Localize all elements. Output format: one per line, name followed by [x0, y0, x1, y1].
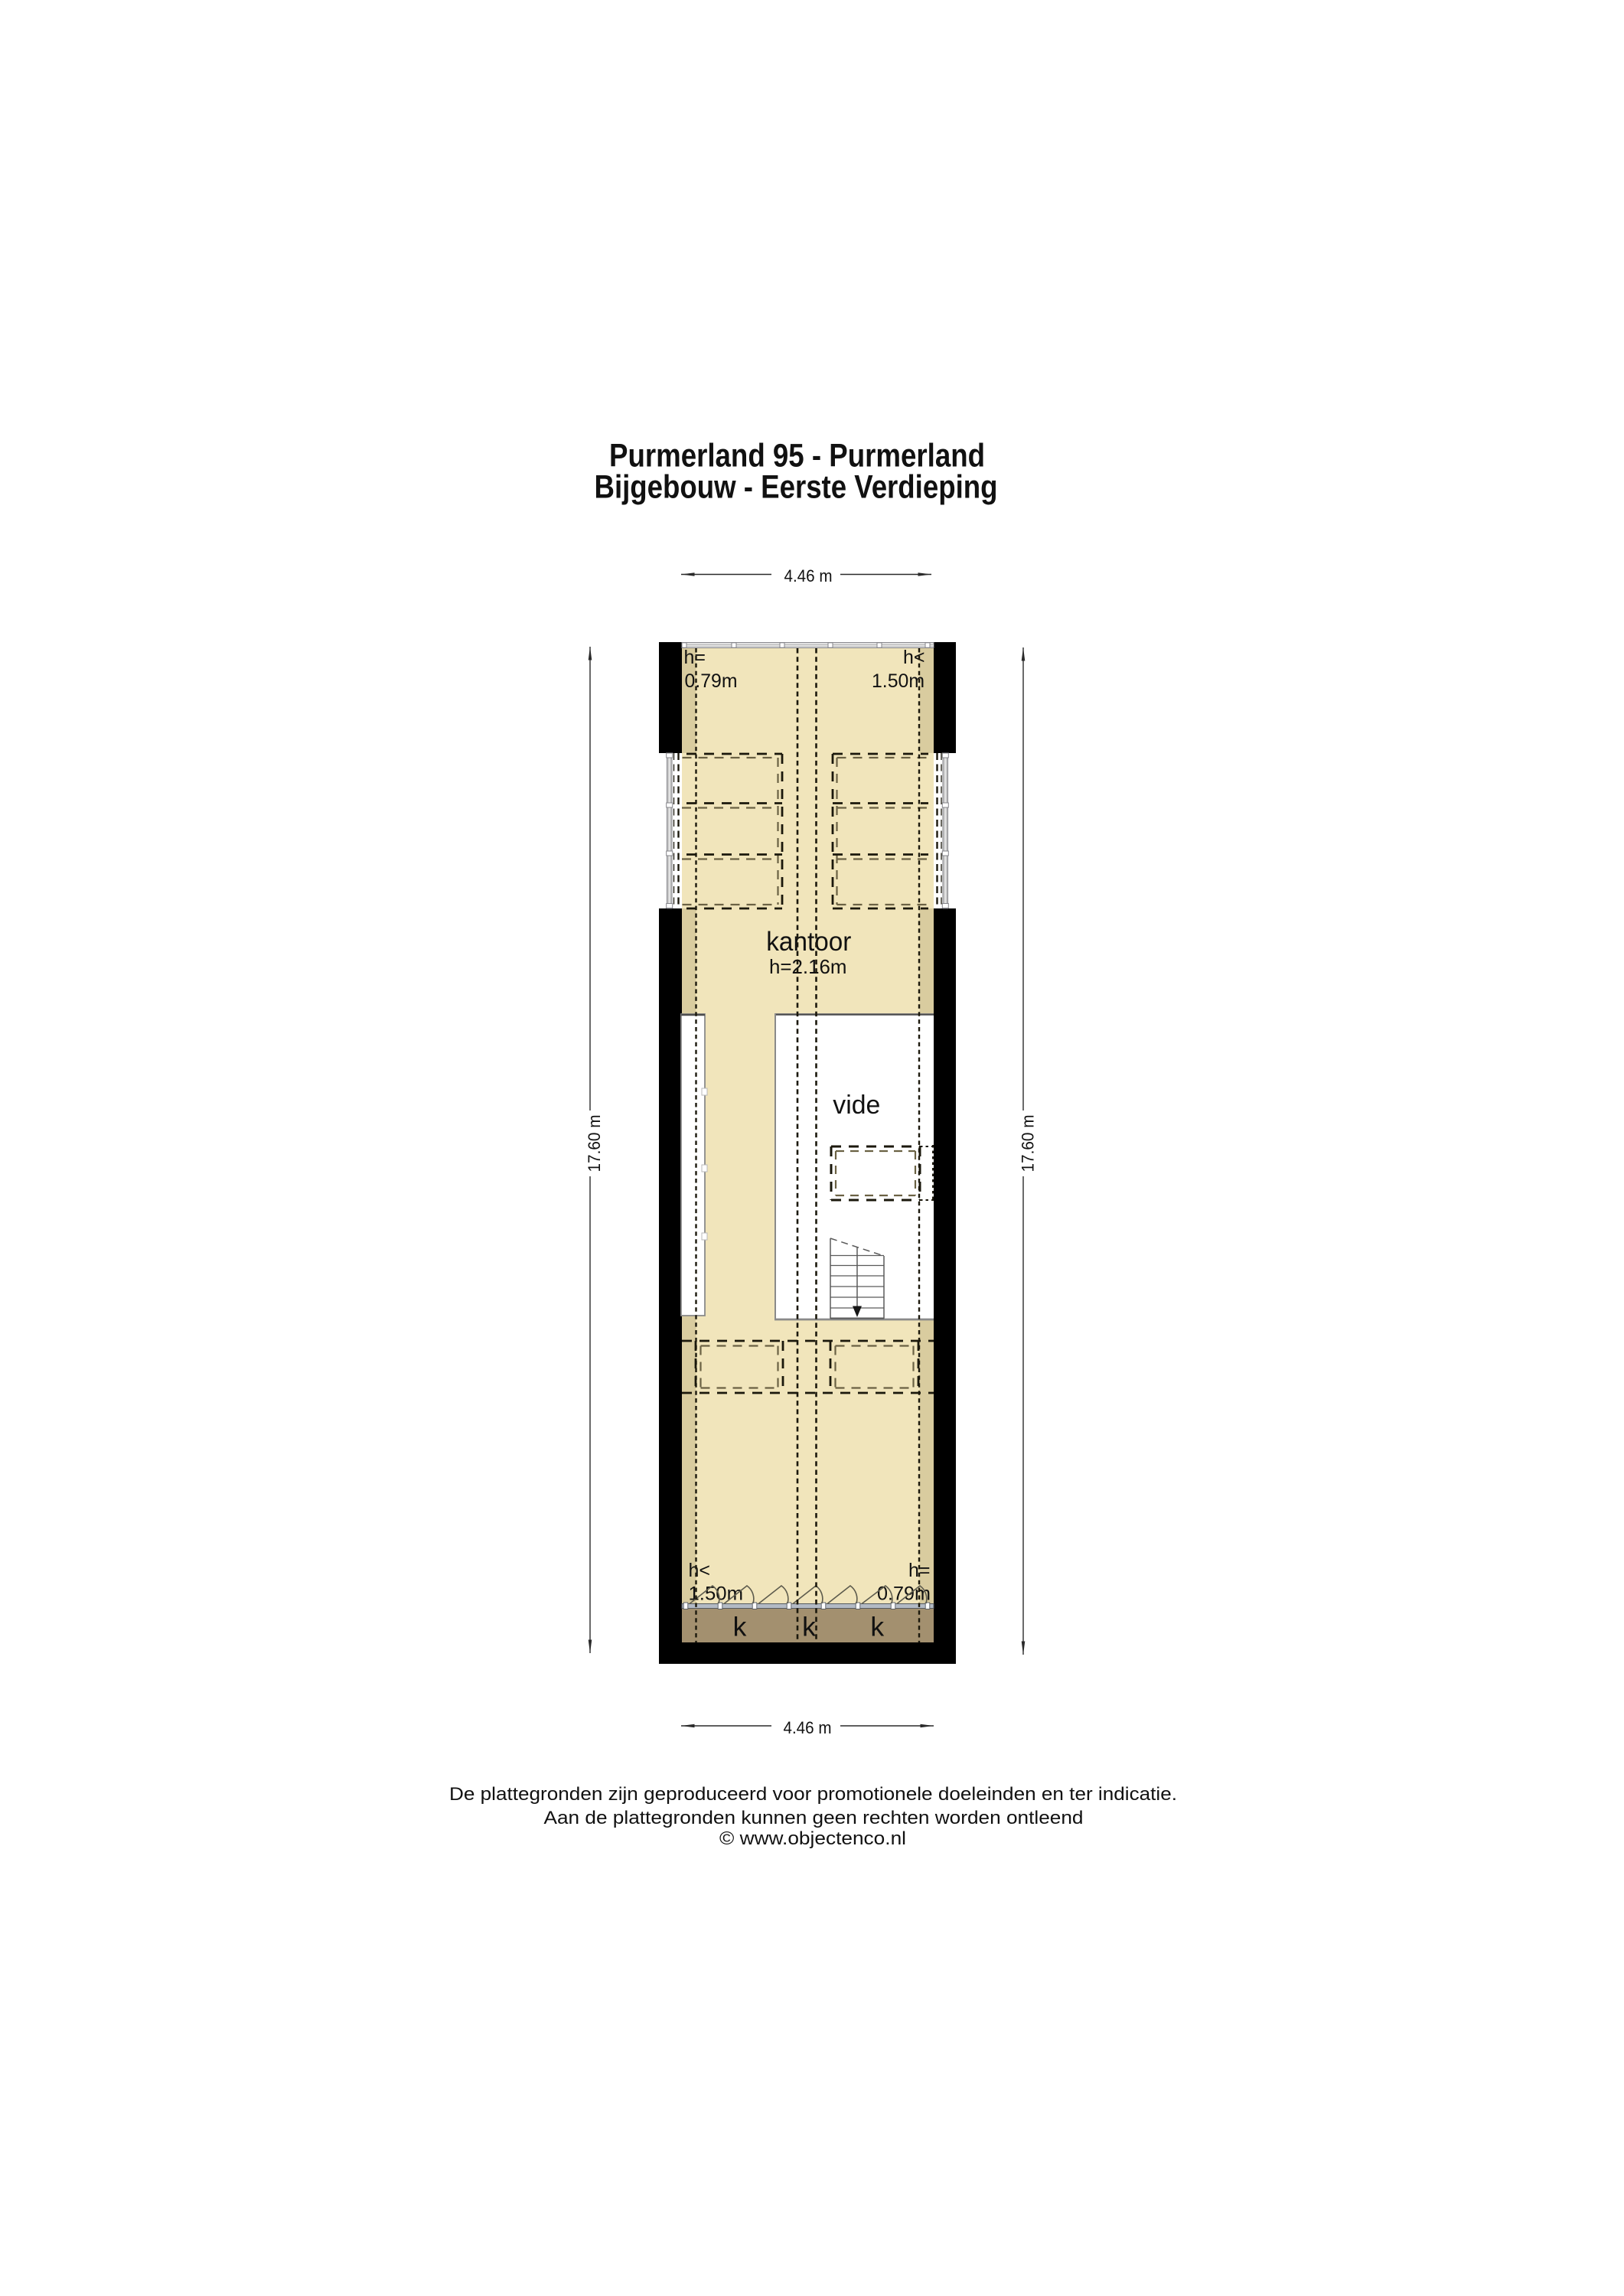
svg-text:k: k — [802, 1612, 816, 1642]
svg-text:k: k — [870, 1612, 884, 1642]
svg-text:Purmerland 95 - Purmerland: Purmerland 95 - Purmerland — [609, 439, 985, 475]
svg-text:17.60 m: 17.60 m — [585, 1115, 604, 1172]
svg-text:h=: h= — [684, 647, 706, 668]
svg-text:Bijgebouw - Eerste Verdieping: Bijgebouw - Eerste Verdieping — [595, 470, 998, 506]
svg-text:4.46 m: 4.46 m — [784, 566, 833, 585]
svg-text:kantoor: kantoor — [766, 926, 851, 957]
svg-text:1.50m: 1.50m — [872, 670, 925, 692]
svg-text:k: k — [733, 1612, 747, 1642]
svg-text:17.60 m: 17.60 m — [1019, 1115, 1038, 1172]
svg-text:1.50m: 1.50m — [689, 1583, 744, 1605]
svg-text:h=2.16m: h=2.16m — [769, 955, 847, 978]
svg-text:h<: h< — [689, 1560, 711, 1581]
svg-text:De plattegronden zijn geproduc: De plattegronden zijn geproduceerd voor … — [449, 1784, 1177, 1805]
svg-text:h=: h= — [908, 1560, 931, 1581]
svg-text:© www.objectenco.nl: © www.objectenco.nl — [719, 1828, 906, 1849]
svg-text:0.79m: 0.79m — [685, 670, 738, 692]
svg-text:4.46 m: 4.46 m — [784, 1718, 832, 1737]
svg-text:h<: h< — [903, 647, 925, 668]
svg-text:vide: vide — [833, 1091, 880, 1120]
svg-text:Aan de plattegronden kunnen ge: Aan de plattegronden kunnen geen rechten… — [544, 1808, 1084, 1828]
